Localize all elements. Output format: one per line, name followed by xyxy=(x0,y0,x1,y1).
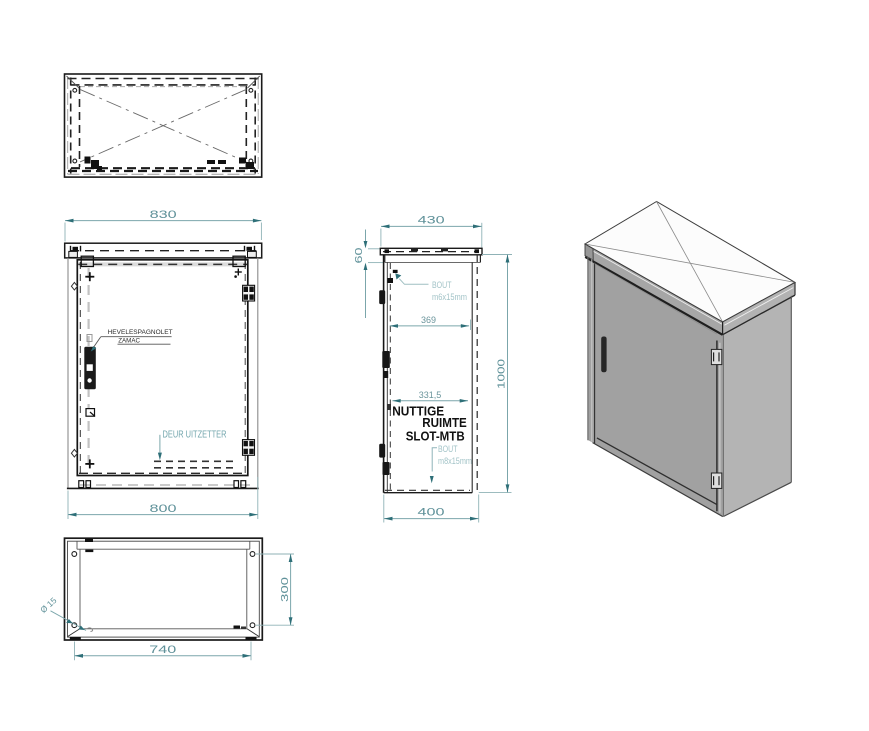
svg-text:300: 300 xyxy=(279,577,291,602)
svg-text:800: 800 xyxy=(150,503,177,515)
svg-text:BOUT: BOUT xyxy=(432,280,452,291)
svg-text:BOUT: BOUT xyxy=(438,444,458,455)
svg-text:369: 369 xyxy=(421,315,436,325)
svg-text:DEUR UITZETTER: DEUR UITZETTER xyxy=(163,429,227,441)
svg-text:ZAMAC: ZAMAC xyxy=(118,338,140,345)
svg-text:830: 830 xyxy=(150,209,177,221)
svg-text:SLOT-MTB: SLOT-MTB xyxy=(406,428,465,443)
svg-text:HEVELESPAGNOLET: HEVELESPAGNOLET xyxy=(108,329,173,336)
svg-text:60: 60 xyxy=(353,247,365,263)
svg-text:400: 400 xyxy=(418,507,445,519)
svg-text:331,5: 331,5 xyxy=(419,390,442,400)
svg-text:740: 740 xyxy=(149,644,176,656)
svg-text:1000: 1000 xyxy=(496,359,508,389)
svg-text:m6x15mm: m6x15mm xyxy=(432,292,467,303)
svg-text:m8x15mm: m8x15mm xyxy=(438,456,472,467)
svg-text:430: 430 xyxy=(418,215,445,227)
